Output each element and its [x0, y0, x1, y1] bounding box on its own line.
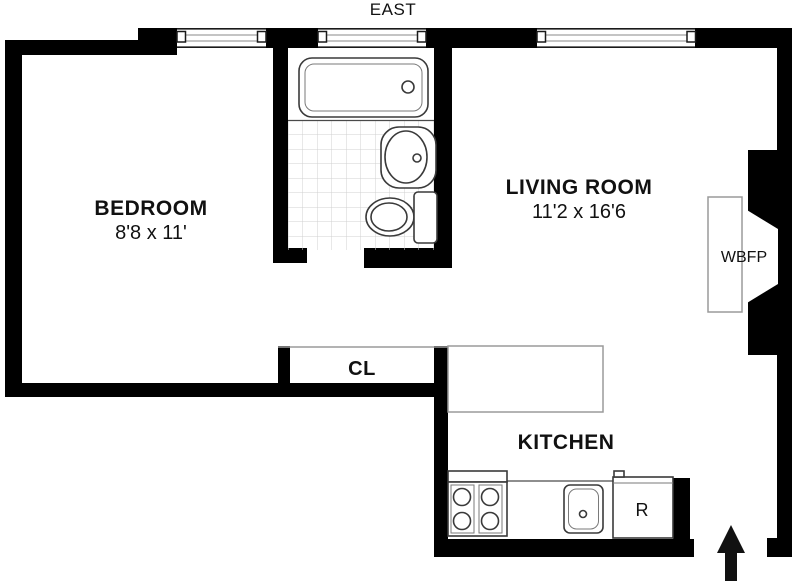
window-frame — [418, 32, 427, 43]
refrigerator-hinge — [614, 471, 624, 477]
toilet-tank — [414, 192, 437, 243]
bedroom-bottom-wall — [5, 383, 448, 397]
kitchen-bottom-wall — [434, 539, 694, 557]
window-frame — [177, 32, 186, 43]
kitchen-label: KITCHEN — [518, 431, 615, 454]
burner — [482, 513, 499, 530]
kitchen-sink-icon — [564, 485, 603, 533]
top-wall-segment-a — [266, 28, 318, 48]
toilet-bowl-inner — [371, 203, 407, 231]
kitchen-counter-island — [448, 346, 603, 412]
kitchen-sink-drain — [580, 511, 587, 518]
refrigerator-label: R — [636, 500, 649, 520]
top-wall-segment-b — [426, 28, 537, 48]
fireplace-label: WBFP — [721, 249, 767, 266]
window-frame — [687, 32, 696, 43]
window-frame — [318, 32, 327, 43]
bedroom-top-wall — [5, 40, 138, 55]
floorplan-drawing: EAST — [0, 0, 800, 585]
refrigerator-icon: R — [613, 471, 673, 538]
window-living-room — [537, 28, 696, 48]
bedroom-dimensions: 8'8 x 11' — [115, 222, 187, 244]
entry-arrow-icon — [717, 525, 745, 581]
burner — [454, 489, 471, 506]
sink-drain — [413, 154, 421, 162]
bedroom-label: BEDROOM — [94, 197, 207, 220]
bathroom — [288, 58, 437, 250]
left-exterior-wall — [5, 40, 22, 397]
top-wall-step — [138, 28, 177, 55]
window-opening — [318, 28, 426, 48]
burner — [482, 489, 499, 506]
window-opening — [537, 28, 695, 48]
right-wall-bottom-corner — [767, 538, 792, 557]
right-wall-upper — [777, 44, 792, 150]
living-room-label: LIVING ROOM — [506, 176, 653, 199]
floorplan-page: EAST — [0, 0, 800, 585]
closet-label: CL — [348, 358, 376, 380]
compass-east-label: EAST — [370, 0, 416, 19]
burner — [454, 513, 471, 530]
bathroom-sink-icon — [381, 127, 436, 188]
bathtub-icon — [299, 58, 428, 117]
closet-left-wall — [278, 346, 290, 383]
window-opening — [177, 28, 266, 48]
window-frame — [537, 32, 546, 43]
closet-kitchen-left-wall — [434, 346, 448, 557]
bathroom-left-wall — [273, 48, 288, 248]
bathroom-door-left-stub — [273, 248, 307, 263]
window-frame — [258, 32, 267, 43]
entry-right-wall-stub — [673, 478, 690, 539]
closet: CL — [278, 347, 448, 380]
living-room-dimensions: 11'2 x 16'6 — [532, 201, 626, 223]
window-bathroom — [318, 28, 426, 48]
bathtub-drain — [402, 81, 414, 93]
stove-icon — [448, 471, 507, 536]
stove-back-panel — [448, 471, 507, 482]
right-wall-lower — [777, 355, 792, 538]
window-bedroom — [177, 28, 266, 48]
